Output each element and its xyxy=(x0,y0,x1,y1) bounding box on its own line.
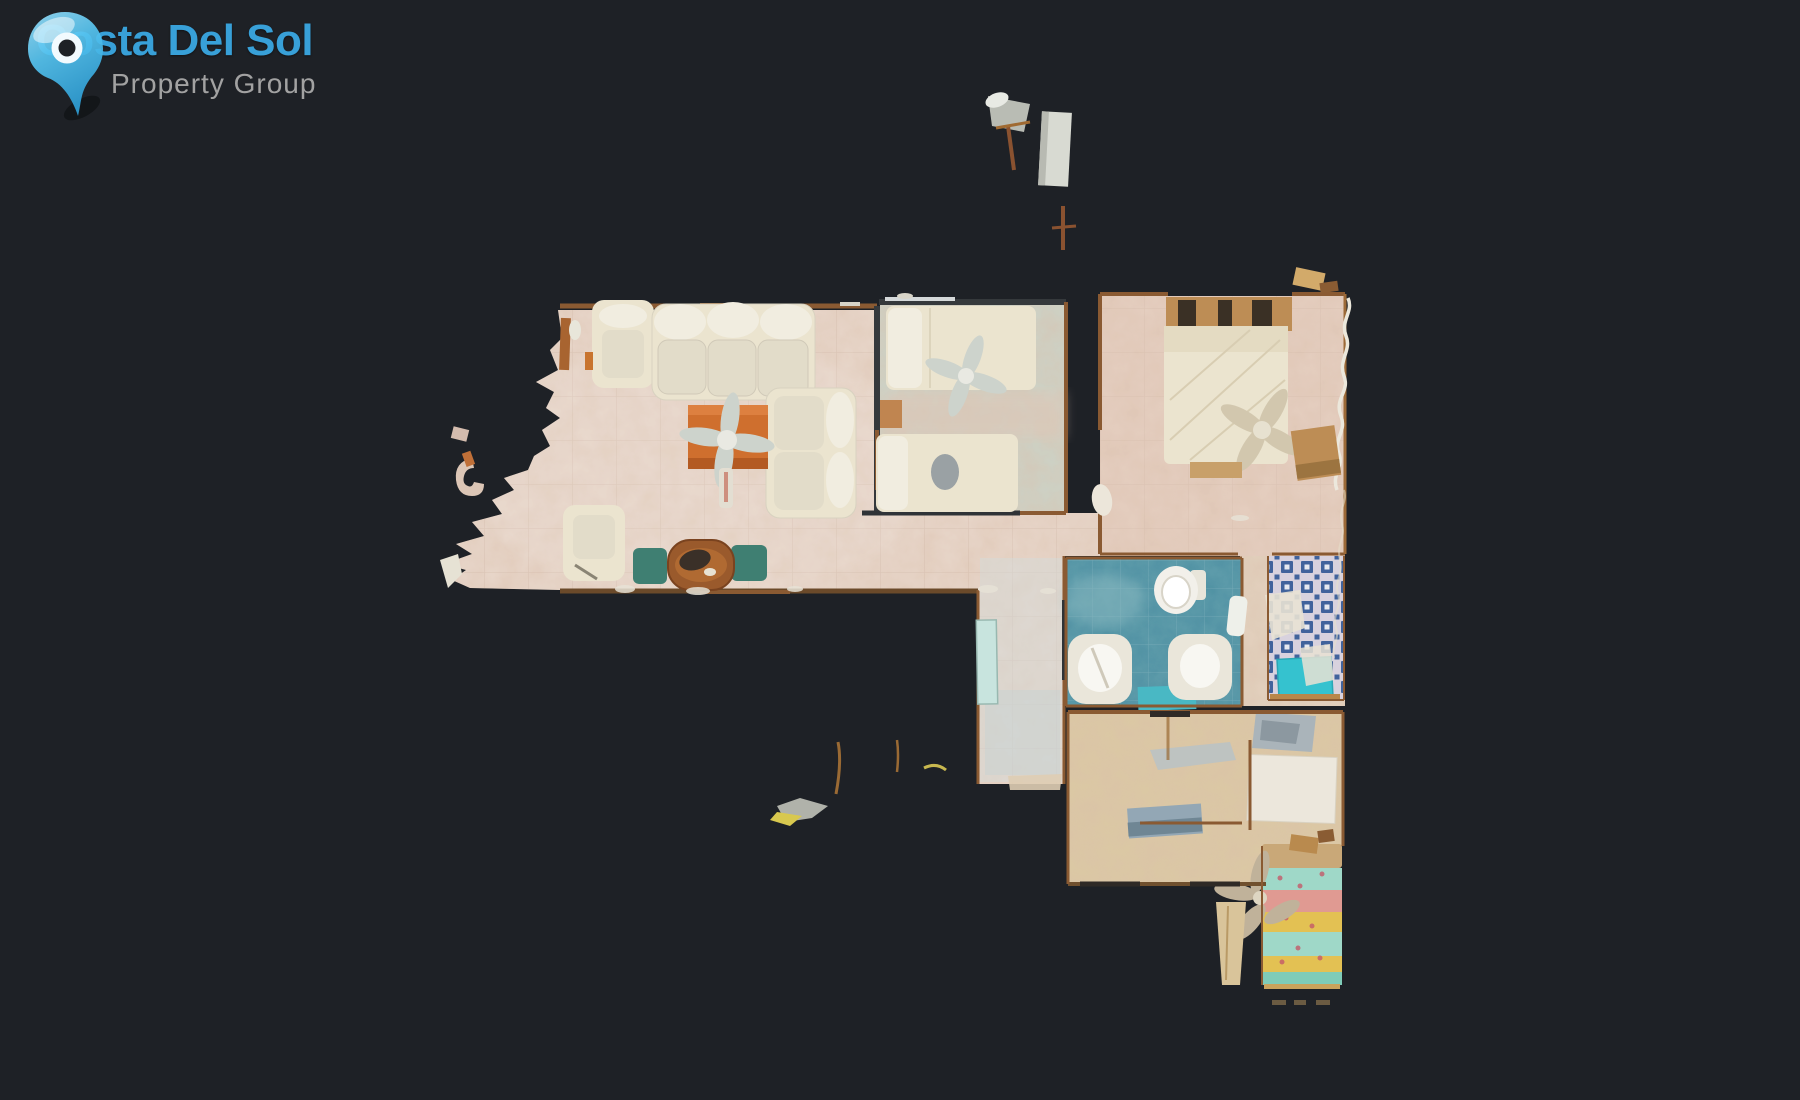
armchair-top xyxy=(592,300,654,388)
bed-bench xyxy=(1190,462,1242,478)
brand-subtitle: Property Group xyxy=(111,68,316,100)
kitchen-counter-white xyxy=(1247,754,1337,823)
green-cushion-1 xyxy=(633,548,667,584)
scan-fragment xyxy=(1008,774,1062,790)
sofa-two-seat xyxy=(766,388,856,518)
scan-fragments-top xyxy=(983,89,1076,250)
wardrobe-fragment xyxy=(1216,902,1246,985)
green-cushion-2 xyxy=(731,545,767,581)
scan-fragment xyxy=(1300,644,1334,686)
toilet-2 xyxy=(1168,634,1232,700)
headboard xyxy=(1166,297,1292,331)
bidet xyxy=(1068,634,1132,704)
armchair-bottom xyxy=(563,505,625,581)
wood-table xyxy=(668,540,734,590)
lamp-blob xyxy=(931,454,959,490)
sofa-three-seat xyxy=(652,302,815,400)
yellow-wisp xyxy=(924,765,946,770)
nightstand xyxy=(880,400,902,428)
scan-fragments-bottom xyxy=(770,798,828,826)
floor-dashes xyxy=(1272,1000,1330,1005)
map-pin-icon xyxy=(16,6,116,128)
brand-logo: Costa Del Sol Property Group xyxy=(6,4,426,134)
corridor-door xyxy=(976,620,997,704)
dollhouse-floorplan-view[interactable] xyxy=(0,0,1800,1100)
room-bathroom-2 xyxy=(1265,556,1344,701)
viewer-stage: Costa Del Sol Property Group xyxy=(0,0,1800,1100)
twin-bed-b xyxy=(876,434,1018,512)
